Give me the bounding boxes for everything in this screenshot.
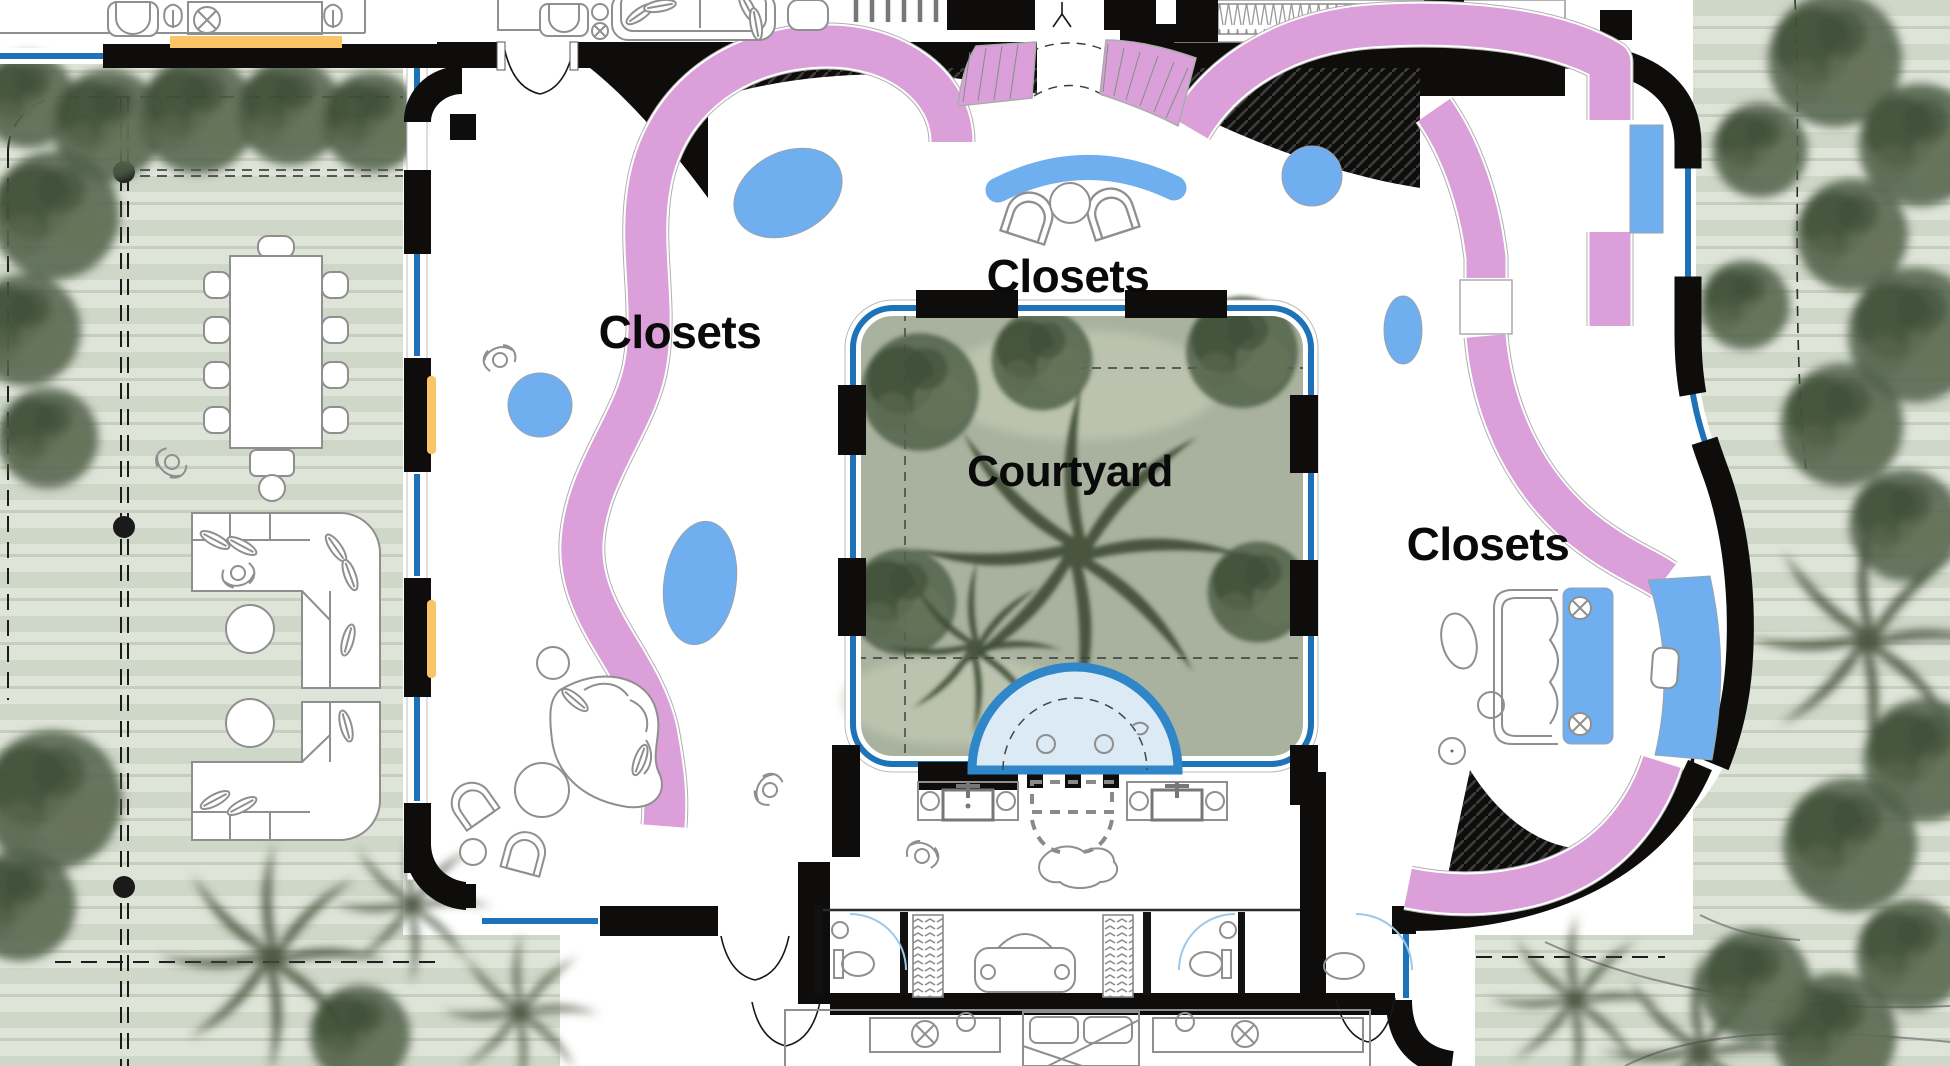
label-courtyard: Courtyard	[967, 447, 1173, 496]
label-closets-left: Closets	[599, 306, 762, 358]
media-console	[1563, 588, 1613, 744]
bench	[975, 948, 1075, 992]
label-closets-right: Closets	[1407, 518, 1570, 570]
label-closets-top: Closets	[987, 250, 1150, 302]
louver-cabinet	[913, 915, 943, 997]
rug-circle-left	[508, 373, 572, 437]
closet-island	[1460, 280, 1512, 334]
floor-plan-page: Closets Closets Closets Courtyard	[0, 0, 1950, 1066]
window-seat-top-right	[1630, 125, 1663, 233]
rug-circle-top-right	[1282, 146, 1342, 206]
rug-ellipse-right	[1384, 296, 1422, 364]
floor-plan-drawing: Closets Closets Closets Courtyard	[0, 0, 1950, 1066]
louver-cabinet	[1103, 915, 1133, 997]
